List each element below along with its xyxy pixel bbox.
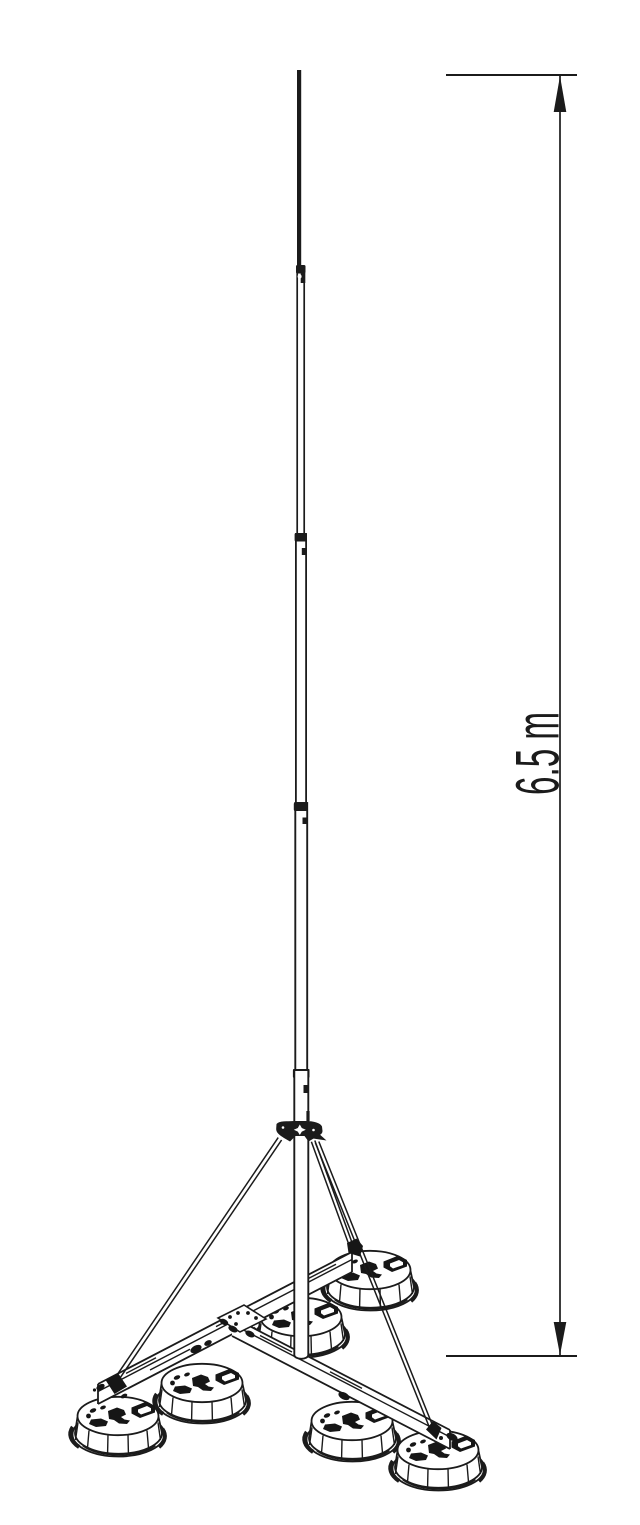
svg-text:6.5 m: 6.5 m — [505, 712, 572, 795]
